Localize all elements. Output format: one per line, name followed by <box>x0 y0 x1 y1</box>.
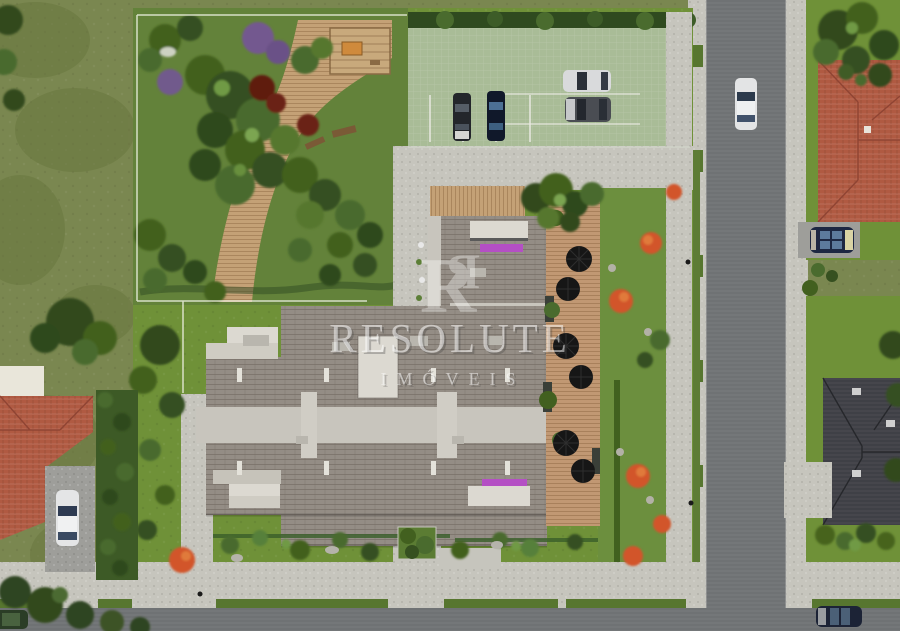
neighbor-house-ne <box>798 0 900 296</box>
parking-lot <box>408 11 696 150</box>
patio-umbrella <box>571 459 595 483</box>
entry-deck-texture <box>430 186 525 218</box>
parking-sedan-navy <box>487 91 505 141</box>
west-slab-bottom-1 <box>229 484 280 496</box>
corner-car-green <box>0 610 28 629</box>
driveway-car-navy <box>810 227 854 253</box>
entry-court-planter <box>398 527 436 559</box>
roof-spine <box>196 407 547 443</box>
parking-sedan-black <box>453 93 471 141</box>
patio-umbrella <box>566 246 592 272</box>
west-slab-bottom-3 <box>213 470 281 484</box>
pedestrian <box>689 501 694 506</box>
east-path-verge <box>693 150 700 562</box>
picnic-table <box>342 42 362 55</box>
aerial-site-render: R R RESOLUTE RESOLUTE IMÓVEIS IMÓVEIS <box>0 0 900 631</box>
site-plan-canvas: R R RESOLUTE RESOLUTE IMÓVEIS IMÓVEIS <box>0 0 900 631</box>
vent-se-3 <box>852 470 861 477</box>
watermark-subtitle: IMÓVEIS <box>381 368 526 389</box>
watermark-brand: RESOLUTE <box>329 315 571 361</box>
patio-umbrella <box>569 365 593 389</box>
east-hedge-line <box>614 380 620 562</box>
spine-cross-1 <box>301 392 317 458</box>
sw-white-structure <box>0 366 44 396</box>
driveway-car-white <box>56 490 79 546</box>
skylight-ne <box>864 126 871 133</box>
west-slab-bottom-2 <box>229 496 280 508</box>
street-car-white <box>735 78 757 130</box>
park-bench-small <box>370 60 380 65</box>
entry-eave-line <box>470 238 528 241</box>
parking-sedan-silver <box>563 70 611 92</box>
entry-skylight <box>470 221 528 238</box>
purple-awning-north <box>480 244 523 252</box>
pedestrian <box>686 260 691 265</box>
spine-cross-2 <box>437 392 457 458</box>
vent-se-1 <box>852 388 861 395</box>
vent-se-2 <box>886 420 895 427</box>
patio-umbrella <box>553 430 579 456</box>
purple-awning-south <box>482 479 527 486</box>
patio-umbrella <box>556 277 580 301</box>
parking-sedan-gray <box>565 97 611 122</box>
south-skylight <box>468 486 530 506</box>
orange-bush-sw <box>169 547 195 573</box>
pergola-playground <box>330 28 390 74</box>
street-car-navy <box>816 606 862 627</box>
driveway-se-texture <box>784 462 832 518</box>
pedestrian <box>198 592 203 597</box>
